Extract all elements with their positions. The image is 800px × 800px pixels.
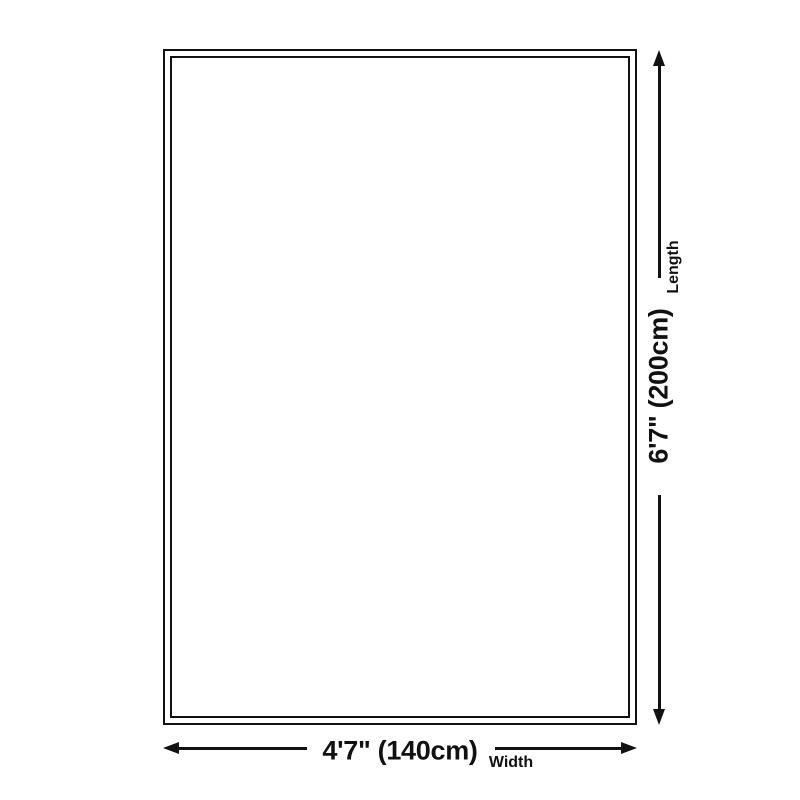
width-dimension-line-left	[178, 747, 307, 750]
length-dimension-line-top	[658, 65, 661, 278]
arrow-down-icon	[653, 709, 665, 725]
size-diagram: Length 6'7" (200cm) 4'7" (140cm) Width	[0, 0, 800, 800]
width-dimension-line-right	[495, 747, 621, 750]
arrow-up-icon	[653, 50, 665, 66]
rug-inner-outline	[170, 56, 630, 718]
length-label: Length	[665, 240, 683, 293]
arrow-left-icon	[163, 742, 179, 754]
rug-outline	[163, 49, 637, 725]
length-dimension-line-bottom	[658, 495, 661, 709]
width-label: Width	[489, 754, 533, 772]
arrow-right-icon	[621, 742, 637, 754]
width-value: 4'7" (140cm)	[322, 736, 477, 767]
length-value: 6'7" (200cm)	[644, 308, 675, 463]
